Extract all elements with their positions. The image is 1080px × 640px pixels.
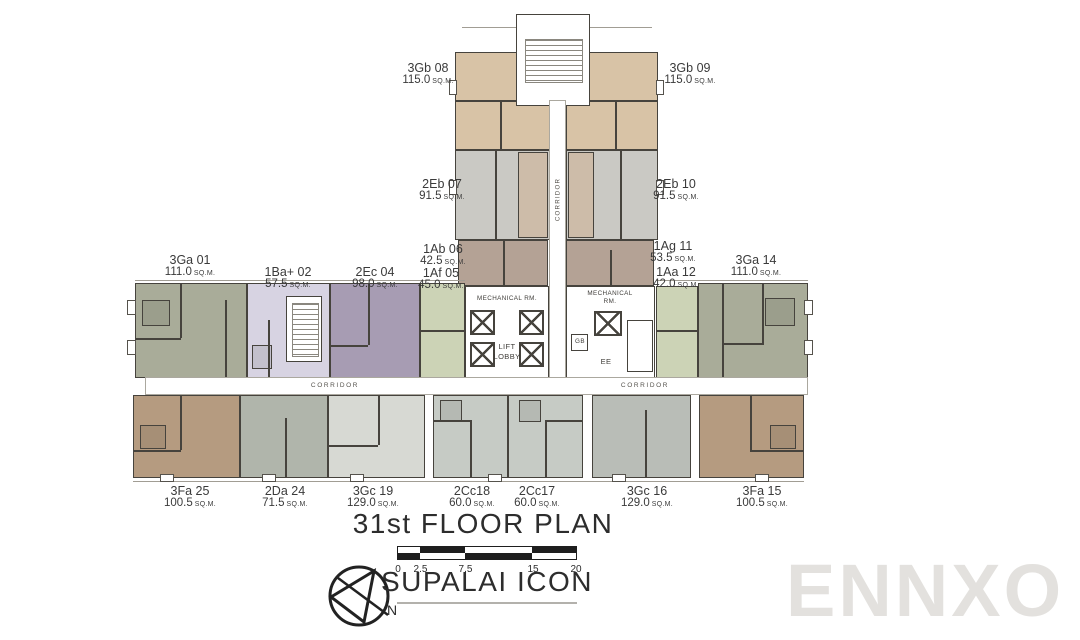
- balcony-tab: [127, 300, 136, 315]
- bath-box: [440, 400, 462, 422]
- balcony-tab: [127, 340, 136, 355]
- balcony-tab: [488, 474, 502, 482]
- corridor-right-label: CORRIDOR: [621, 382, 669, 389]
- unit-block-2ec-04: [330, 283, 420, 378]
- wall-line: [328, 445, 378, 447]
- lift-shaft: [519, 342, 544, 367]
- mechanical-room-right-label-line2: RM.: [604, 299, 617, 306]
- unit-label-3gc-16: 3Gc 16 129.0SQ.M.: [621, 485, 673, 509]
- unit-label-2cc-17: 2Cc17 60.0SQ.M.: [514, 485, 560, 509]
- unit-label-1ag-11: 1Ag 11 53.5SQ.M.: [650, 240, 696, 264]
- wall-line: [656, 330, 698, 332]
- wall-line: [495, 150, 497, 240]
- corridor-vertical: [549, 100, 566, 378]
- unit-block-1aa-12: [656, 286, 698, 378]
- page-title: 31st FLOOR PLAN: [353, 508, 614, 540]
- right-stair: [627, 320, 653, 372]
- bath-box: [519, 400, 541, 422]
- top-stair-core: [516, 14, 590, 106]
- unit-block-3ga-01: [135, 283, 247, 378]
- wall-line: [722, 283, 724, 378]
- unit-label-2da-24: 2Da 24 71.5SQ.M.: [262, 485, 308, 509]
- wing-stair: [286, 296, 322, 362]
- scale-bar: 0 2.5 7.5 15 20: [397, 546, 577, 560]
- watermark: ENNXO: [786, 548, 1064, 633]
- wall-line: [368, 283, 370, 345]
- unit-label-2eb-07: 2Eb 07 91.5SQ.M.: [419, 178, 465, 202]
- gb-label: GB: [575, 339, 585, 346]
- corridor-left-label: CORRIDOR: [311, 382, 359, 389]
- bath-core-left: [518, 152, 548, 238]
- bath-box: [770, 425, 796, 449]
- wall-line: [330, 345, 368, 347]
- wall-line: [470, 420, 472, 478]
- unit-label-1ab-06: 1Ab 06 42.5SQ.M.: [420, 243, 466, 267]
- lift-shaft: [470, 310, 495, 335]
- ee-label: EE: [601, 358, 612, 366]
- bath-box: [142, 300, 170, 326]
- wall-line: [610, 250, 612, 286]
- wall-line: [722, 343, 764, 345]
- wall-line: [180, 283, 182, 338]
- wall-line: [420, 330, 465, 332]
- stair-treads: [525, 39, 583, 83]
- balcony-tab: [350, 474, 364, 482]
- north-label: N: [387, 602, 397, 618]
- wall-line: [645, 410, 647, 478]
- unit-label-3gc-19: 3Gc 19 129.0SQ.M.: [347, 485, 399, 509]
- wall-line: [225, 300, 227, 378]
- unit-label-1aa-12: 1Aa 12 42.0SQ.M.: [653, 266, 699, 290]
- balcony-tab: [656, 80, 664, 95]
- unit-label-1ba-02: 1Ba+ 02 57.5SQ.M.: [265, 266, 312, 290]
- unit-label-2ec-04: 2Ec 04 98.0SQ.M.: [352, 266, 398, 290]
- bath-box: [140, 425, 166, 449]
- wall-line: [750, 395, 752, 450]
- unit-label-3fa-15: 3Fa 15 100.5SQ.M.: [736, 485, 788, 509]
- service-lift-shaft: [594, 311, 622, 336]
- project-name-underline: [397, 602, 577, 604]
- unit-label-3ga-01: 3Ga 01 111.0SQ.M.: [165, 254, 215, 278]
- lift-shaft: [470, 342, 495, 367]
- lift-lobby-label-line1: LIFT: [498, 343, 515, 351]
- unit-label-3gb-08: 3Gb 08 115.0SQ.M.: [402, 62, 453, 86]
- wall-line: [180, 395, 182, 450]
- floor-plan-canvas: CORRIDOR MECHANICAL RM. LIFT LOBBY MECHA…: [0, 0, 1080, 640]
- wall-line: [545, 420, 583, 422]
- wall-line: [545, 420, 547, 478]
- unit-label-1af-05: 1Af 05 45.0SQ.M.: [418, 267, 464, 291]
- balcony-tab: [755, 474, 769, 482]
- bath-box: [252, 345, 272, 369]
- unit-block-2da-24: [240, 395, 328, 478]
- wall-line: [285, 418, 287, 478]
- wall-line: [500, 100, 502, 150]
- wall-line: [750, 450, 804, 452]
- stair-treads: [292, 303, 319, 357]
- wall-line: [135, 338, 181, 340]
- mechanical-room-left-label: MECHANICAL RM.: [477, 296, 537, 303]
- balcony-tab: [804, 340, 813, 355]
- wall-line: [620, 150, 622, 240]
- unit-label-3fa-25: 3Fa 25 100.5SQ.M.: [164, 485, 216, 509]
- wall-line: [762, 283, 764, 343]
- bath-box: [765, 298, 795, 326]
- balcony-tab: [612, 474, 626, 482]
- wall-line: [133, 450, 181, 452]
- wall-line: [615, 100, 617, 150]
- balcony-tab: [804, 300, 813, 315]
- unit-label-2cc-18: 2Cc18 60.0SQ.M.: [449, 485, 495, 509]
- balcony-tab: [262, 474, 276, 482]
- wall-line: [503, 240, 505, 286]
- unit-block-3gc-19: [328, 395, 425, 478]
- mechanical-room-right-label-line1: MECHANICAL: [587, 291, 632, 298]
- corridor-vertical-label: CORRIDOR: [555, 170, 562, 230]
- unit-label-3gb-09: 3Gb 09 115.0SQ.M.: [664, 62, 715, 86]
- wall-line: [378, 395, 380, 445]
- balcony-rail: [133, 481, 804, 482]
- bath-core-right: [568, 152, 594, 238]
- unit-label-3ga-14: 3Ga 14 111.0SQ.M.: [731, 254, 781, 278]
- unit-label-2eb-10: 2Eb 10 91.5SQ.M.: [653, 178, 699, 202]
- corridor-horizontal: [145, 377, 808, 395]
- balcony-tab: [160, 474, 174, 482]
- lift-lobby-label-line2: LOBBY: [493, 353, 520, 361]
- unit-block-3gc-16: [592, 395, 691, 478]
- scale-bar-bottom-row: [398, 553, 576, 559]
- project-name: SUPALAI ICON: [381, 566, 593, 598]
- lift-shaft: [519, 310, 544, 335]
